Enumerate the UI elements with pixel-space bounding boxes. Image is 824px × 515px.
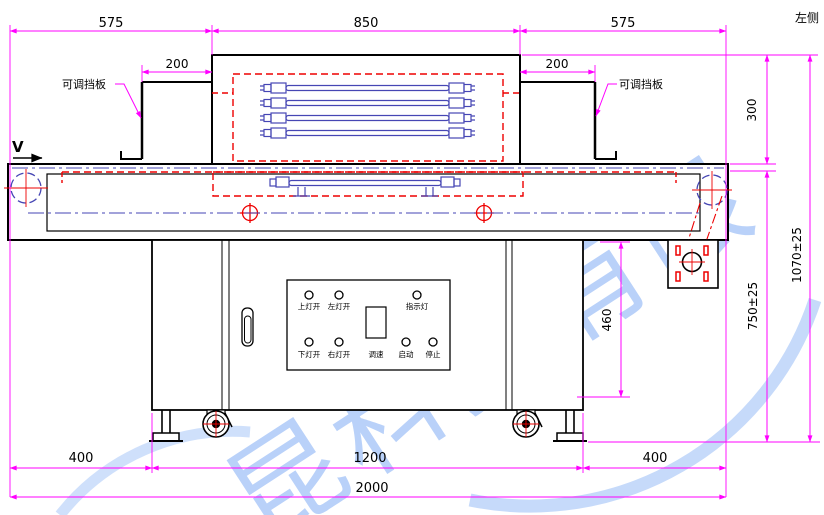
leveling-foot-left bbox=[149, 410, 183, 441]
dim-text-1070: 1070±25 bbox=[790, 227, 804, 283]
dim-text-1200: 1200 bbox=[353, 451, 386, 466]
label-indicator: 指示灯 bbox=[406, 301, 429, 311]
dim-text-200-right: 200 bbox=[546, 57, 569, 71]
speed-controller-window[interactable] bbox=[366, 307, 386, 338]
adjustable-baffle-right bbox=[520, 82, 616, 159]
dim-text-850: 850 bbox=[354, 16, 379, 31]
button-left-lamp[interactable] bbox=[335, 291, 343, 299]
dim-text-750: 750±25 bbox=[746, 282, 760, 330]
label-upper-lamp: 上灯开 bbox=[298, 301, 321, 311]
label-stop: 停止 bbox=[426, 349, 441, 359]
dim-text-575-right: 575 bbox=[611, 16, 636, 31]
label-right-lamp: 右灯开 bbox=[328, 349, 351, 359]
button-lower-lamp[interactable] bbox=[305, 338, 313, 346]
caster-wheel-right bbox=[513, 410, 542, 437]
dim-text-460: 460 bbox=[600, 309, 614, 332]
label-start: 启动 bbox=[399, 349, 414, 359]
baffle-label-left: 可调挡板 bbox=[62, 77, 106, 91]
baffle-label-right: 可调挡板 bbox=[619, 77, 663, 91]
cad-drawing-uv-conveyor: 昆科技有限 bbox=[0, 0, 824, 515]
dim-text-200-left: 200 bbox=[166, 57, 189, 71]
drawing-canvas: 昆科技有限 bbox=[0, 0, 824, 515]
dim-text-575-left: 575 bbox=[99, 16, 124, 31]
button-right-lamp[interactable] bbox=[335, 338, 343, 346]
dim-text-2000: 2000 bbox=[355, 481, 388, 496]
dim-text-400-left: 400 bbox=[69, 451, 94, 466]
belt-direction-arrow: V bbox=[12, 138, 42, 158]
label-speed: 调速 bbox=[369, 350, 384, 359]
label-lower-lamp: 下灯开 bbox=[298, 349, 321, 359]
velocity-label: V bbox=[12, 138, 24, 156]
control-panel: 上灯开 左灯开 指示灯 下灯开 右灯开 调速 启动 停止 bbox=[287, 280, 450, 370]
button-stop[interactable] bbox=[429, 338, 437, 346]
button-upper-lamp[interactable] bbox=[305, 291, 313, 299]
lamp-housing bbox=[212, 55, 520, 164]
view-label: 左侧 bbox=[795, 10, 819, 25]
conveyor-frame bbox=[8, 164, 728, 240]
button-start[interactable] bbox=[402, 338, 410, 346]
adjustable-baffle-left bbox=[121, 82, 212, 159]
dim-text-300: 300 bbox=[745, 99, 759, 122]
leveling-foot-right bbox=[553, 410, 587, 441]
label-left-lamp: 左灯开 bbox=[328, 301, 351, 311]
dim-text-400-right: 400 bbox=[643, 451, 668, 466]
indicator-light bbox=[413, 291, 421, 299]
